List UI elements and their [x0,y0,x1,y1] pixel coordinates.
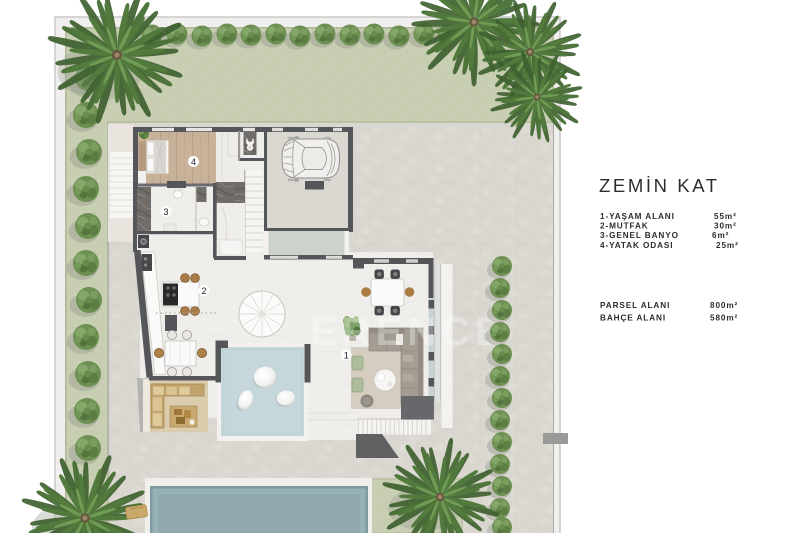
svg-text:1-YAŞAM ALANI: 1-YAŞAM ALANI [600,212,675,221]
svg-text:3-GENEL BANYO: 3-GENEL BANYO [600,231,679,240]
svg-text:800m²: 800m² [710,301,738,310]
svg-text:PARSEL ALANI: PARSEL ALANI [600,301,670,310]
svg-text:ERENCE: ERENCE [310,310,507,354]
svg-text:2-MUTFAK: 2-MUTFAK [600,222,649,231]
svg-text:55m²: 55m² [714,212,737,221]
svg-text:25m²: 25m² [716,241,739,250]
svg-text:2: 2 [202,286,207,296]
svg-text:ZEMİN KAT: ZEMİN KAT [599,175,720,196]
svg-text:30m²: 30m² [714,222,737,231]
svg-text:3: 3 [164,207,169,217]
svg-text:580m²: 580m² [710,314,738,323]
svg-text:4-YATAK ODASI: 4-YATAK ODASI [600,241,673,250]
svg-text:BAHÇE ALANI: BAHÇE ALANI [600,314,666,323]
svg-text:4: 4 [191,157,196,167]
svg-text:6m²: 6m² [712,231,729,240]
